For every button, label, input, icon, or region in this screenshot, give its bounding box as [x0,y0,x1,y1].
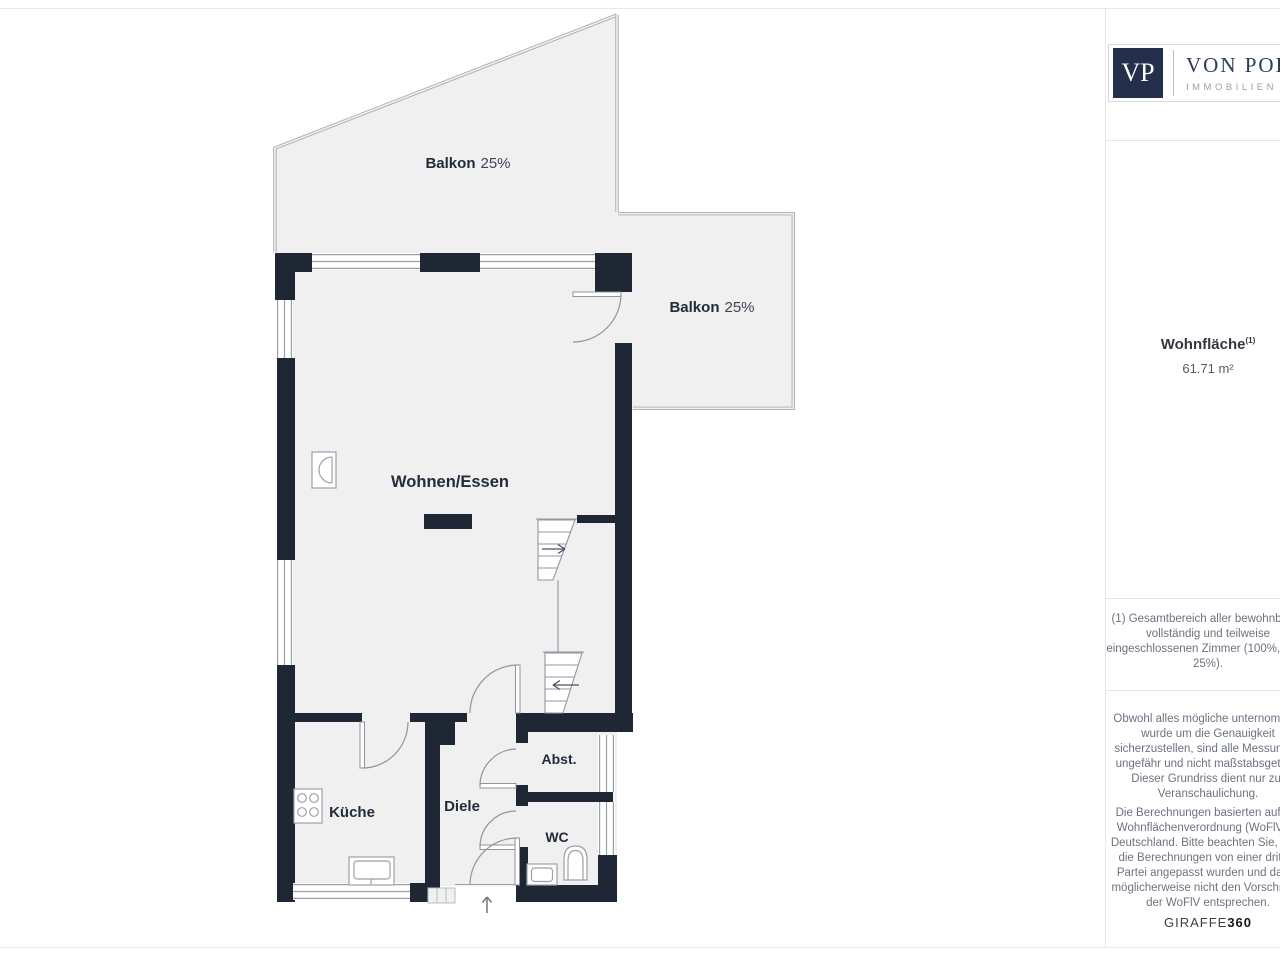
credit-bold: 360 [1227,915,1252,930]
divider-1 [1105,140,1280,141]
toilet-icon [564,846,587,880]
entry-arrow-icon [483,897,492,913]
vp-monogram-icon: VP [1113,48,1163,98]
wc-label: WC [545,829,568,845]
wc-basin-icon [527,864,557,885]
giraffe360-credit: GIRAFFE360 [1105,915,1280,930]
disclaimer-wofiv: Die Berechnungen basierten auf der Wohnf… [1105,806,1280,911]
kitchen-sink-icon [349,857,394,885]
divider-3 [1105,690,1280,691]
entry-steps [428,888,455,903]
living-area-block: Wohnfläche(1) 61.71 m² [1105,336,1280,376]
area-label-text: Wohnfläche [1161,336,1246,353]
area-value: 61.71 m² [1105,361,1280,376]
wall-cabinet-icon [312,452,336,488]
footnote-text: (1) Gesamtbereich aller bewohnbaren voll… [1105,612,1280,672]
disclaimer-accuracy: Obwohl alles mögliche unternommen wurde … [1105,712,1280,802]
area-label: Wohnfläche(1) [1105,336,1280,353]
bottom-frame-line [0,947,1280,948]
stove-icon [294,789,322,823]
credit-regular: GIRAFFE [1164,915,1227,930]
wohnen-essen-label: Wohnen/Essen [391,473,509,491]
balkon-right-label: Balkon25% [669,299,754,316]
logo-text: VON POLL IMMOBILIEN [1186,53,1280,93]
vonpoll-logo: VP VON POLL IMMOBILIEN [1108,44,1280,102]
brand-subtitle: IMMOBILIEN [1186,82,1280,93]
divider-2 [1105,598,1280,599]
area-footnote-ref: (1) [1245,336,1255,345]
floorplan-page: Balkon25% Balkon25% Wohnen/Essen Küche D… [0,0,1280,960]
vp-monogram-text: VP [1121,58,1154,88]
logo-separator [1173,50,1174,96]
top-frame-line [0,8,1280,9]
diele-label: Diele [444,798,480,815]
entrance [428,885,515,914]
kueche-label: Küche [329,804,375,821]
balkon-top-label: Balkon25% [425,155,510,172]
abst-label: Abst. [542,751,577,767]
brand-name: VON POLL [1186,53,1280,78]
floor-plan: Balkon25% Balkon25% Wohnen/Essen Küche D… [0,0,1105,960]
